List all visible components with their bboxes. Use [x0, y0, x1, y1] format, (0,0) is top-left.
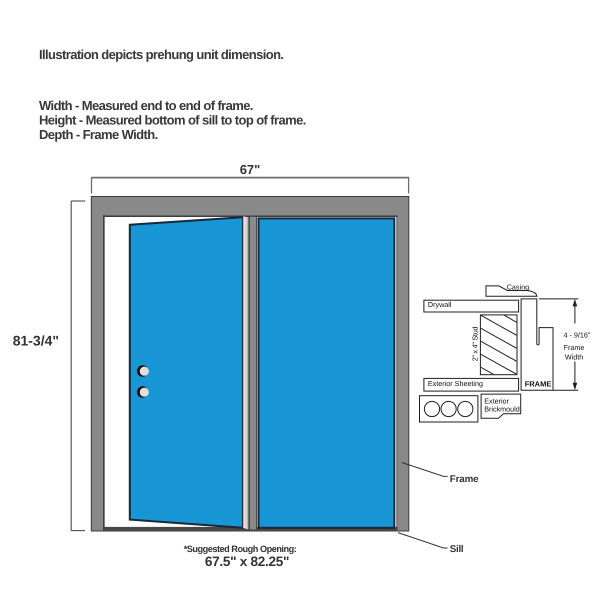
- svg-text:Frame: Frame: [450, 474, 479, 485]
- svg-text:*Suggested Rough Opening:: *Suggested Rough Opening:: [184, 544, 297, 554]
- svg-text:2" x 4" Stud: 2" x 4" Stud: [470, 327, 479, 362]
- svg-text:67": 67": [240, 162, 261, 177]
- svg-text:4 - 9/16": 4 - 9/16": [564, 331, 591, 340]
- svg-text:67.5" x 82.25": 67.5" x 82.25": [205, 554, 289, 569]
- svg-text:FRAME: FRAME: [525, 379, 552, 388]
- svg-text:Frame: Frame: [564, 343, 585, 352]
- svg-text:Brickmould: Brickmould: [484, 405, 520, 414]
- svg-text:Casing: Casing: [507, 282, 529, 291]
- svg-text:81-3/4": 81-3/4": [13, 332, 59, 348]
- svg-text:Depth - Frame Width.: Depth - Frame Width.: [39, 127, 158, 142]
- svg-text:Sill: Sill: [450, 544, 464, 555]
- svg-text:Height - Measured bottom of si: Height - Measured bottom of sill to top …: [39, 113, 306, 128]
- svg-text:Exterior Sheeting: Exterior Sheeting: [428, 379, 483, 388]
- svg-text:Illustration depicts prehung u: Illustration depicts prehung unit dimens…: [39, 47, 283, 62]
- svg-text:Drywall: Drywall: [428, 300, 452, 309]
- svg-text:Width - Measured end to end of: Width - Measured end to end of frame.: [39, 98, 253, 113]
- svg-text:Width: Width: [565, 353, 583, 362]
